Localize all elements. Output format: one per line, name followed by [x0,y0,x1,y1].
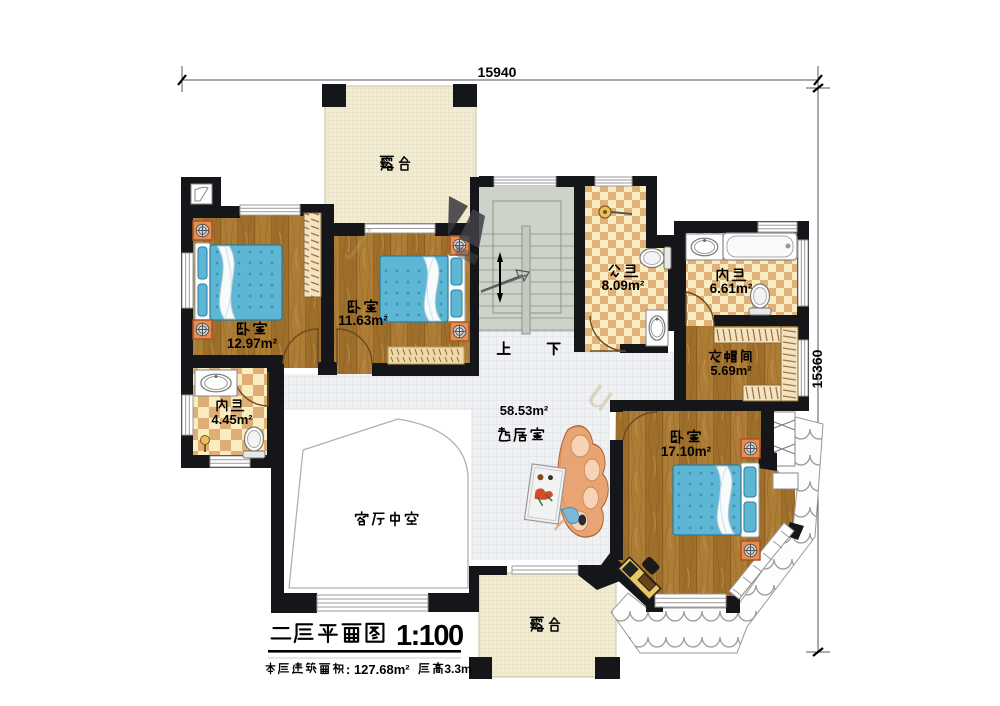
svg-text:15940: 15940 [478,64,517,80]
svg-text:17.10m²: 17.10m² [661,444,712,459]
svg-text:: 3.3m: : 3.3m [437,662,472,676]
svg-text:8.09m²: 8.09m² [602,278,645,293]
svg-text:1:100: 1:100 [396,620,463,652]
svg-text:: 127.68m²: : 127.68m² [346,662,410,677]
svg-text:4.45m²: 4.45m² [211,412,253,427]
svg-text:15360: 15360 [809,349,825,388]
svg-text:5.69m²: 5.69m² [710,363,752,378]
svg-text:58.53m²: 58.53m² [500,403,549,418]
svg-text:6.61m²: 6.61m² [710,281,753,296]
svg-text:12.97m²: 12.97m² [227,336,278,351]
svg-text:11.63m²: 11.63m² [338,313,388,328]
